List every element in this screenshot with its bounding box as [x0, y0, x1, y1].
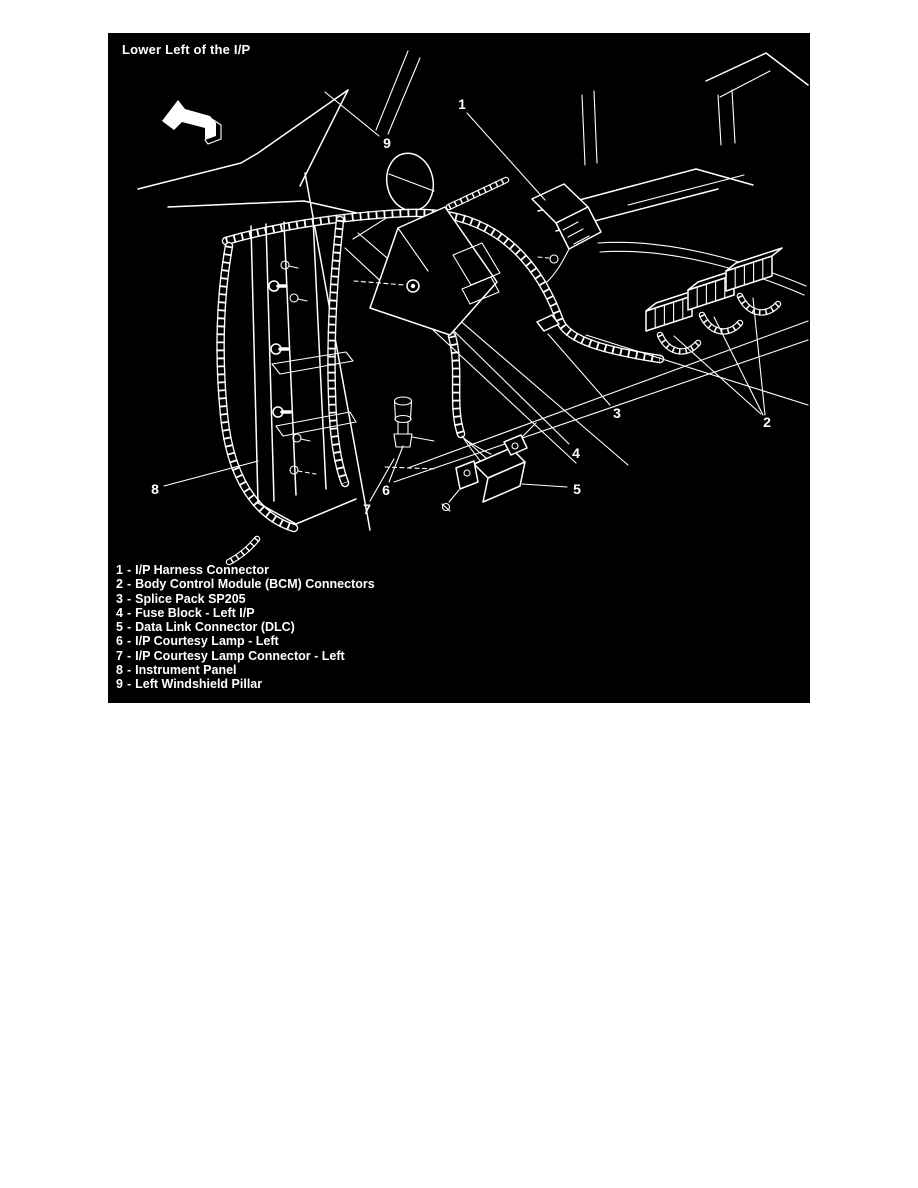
legend-item-label: Left Windshield Pillar: [135, 677, 262, 691]
legend: 1-I/P Harness Connector 2-Body Control M…: [116, 563, 375, 692]
callout-5: 5: [573, 481, 581, 497]
legend-item-number: 4: [116, 606, 123, 620]
legend-item-number: 8: [116, 663, 123, 677]
up-left-arrow-icon: [162, 100, 221, 144]
legend-separator: -: [127, 577, 131, 591]
legend-item-number: 7: [116, 649, 123, 663]
legend-item: 9-Left Windshield Pillar: [116, 677, 375, 691]
legend-item-number: 6: [116, 634, 123, 648]
callout-9: 9: [383, 135, 391, 151]
legend-item-number: 2: [116, 577, 123, 591]
legend-item-number: 3: [116, 592, 123, 606]
legend-item: 8-Instrument Panel: [116, 663, 375, 677]
legend-item-label: Fuse Block - Left I/P: [135, 606, 254, 620]
legend-item-label: I/P Harness Connector: [135, 563, 269, 577]
ip-harness-connector-art: [532, 184, 601, 282]
legend-item-number: 5: [116, 620, 123, 634]
callout-1: 1: [458, 96, 466, 112]
courtesy-lamp-art: [394, 397, 434, 447]
legend-item-label: Splice Pack SP205: [135, 592, 246, 606]
legend-item: 6-I/P Courtesy Lamp - Left: [116, 634, 375, 648]
legend-item-label: I/P Courtesy Lamp - Left: [135, 634, 279, 648]
legend-separator: -: [127, 592, 131, 606]
callout-4: 4: [572, 445, 580, 461]
callout-7: 7: [363, 501, 371, 517]
legend-separator: -: [127, 677, 131, 691]
callout-2: 2: [763, 414, 771, 430]
dlc-art: [442, 423, 536, 511]
legend-item: 1-I/P Harness Connector: [116, 563, 375, 577]
legend-item-label: Instrument Panel: [135, 663, 236, 677]
figure-panel: 1 2 3 4 5 6 7 8 9 Lower Left of the I/P …: [108, 33, 810, 703]
callout-8: 8: [151, 481, 159, 497]
legend-item-label: Body Control Module (BCM) Connectors: [135, 577, 375, 591]
legend-item: 4-Fuse Block - Left I/P: [116, 606, 375, 620]
figure-title: Lower Left of the I/P: [122, 42, 250, 57]
legend-separator: -: [127, 663, 131, 677]
legend-separator: -: [127, 634, 131, 648]
legend-item: 2-Body Control Module (BCM) Connectors: [116, 577, 375, 591]
legend-item-label: Data Link Connector (DLC): [135, 620, 295, 634]
legend-item-number: 1: [116, 563, 123, 577]
legend-separator: -: [127, 620, 131, 634]
legend-item: 5-Data Link Connector (DLC): [116, 620, 375, 634]
legend-item-label: I/P Courtesy Lamp Connector - Left: [135, 649, 345, 663]
legend-separator: -: [127, 606, 131, 620]
callout-3: 3: [613, 405, 621, 421]
callout-6: 6: [382, 482, 390, 498]
legend-item-number: 9: [116, 677, 123, 691]
legend-separator: -: [127, 563, 131, 577]
legend-item: 7-I/P Courtesy Lamp Connector - Left: [116, 649, 375, 663]
legend-item: 3-Splice Pack SP205: [116, 592, 375, 606]
legend-separator: -: [127, 649, 131, 663]
page: { "figure": { "title": "Lower Left of th…: [0, 0, 918, 1188]
